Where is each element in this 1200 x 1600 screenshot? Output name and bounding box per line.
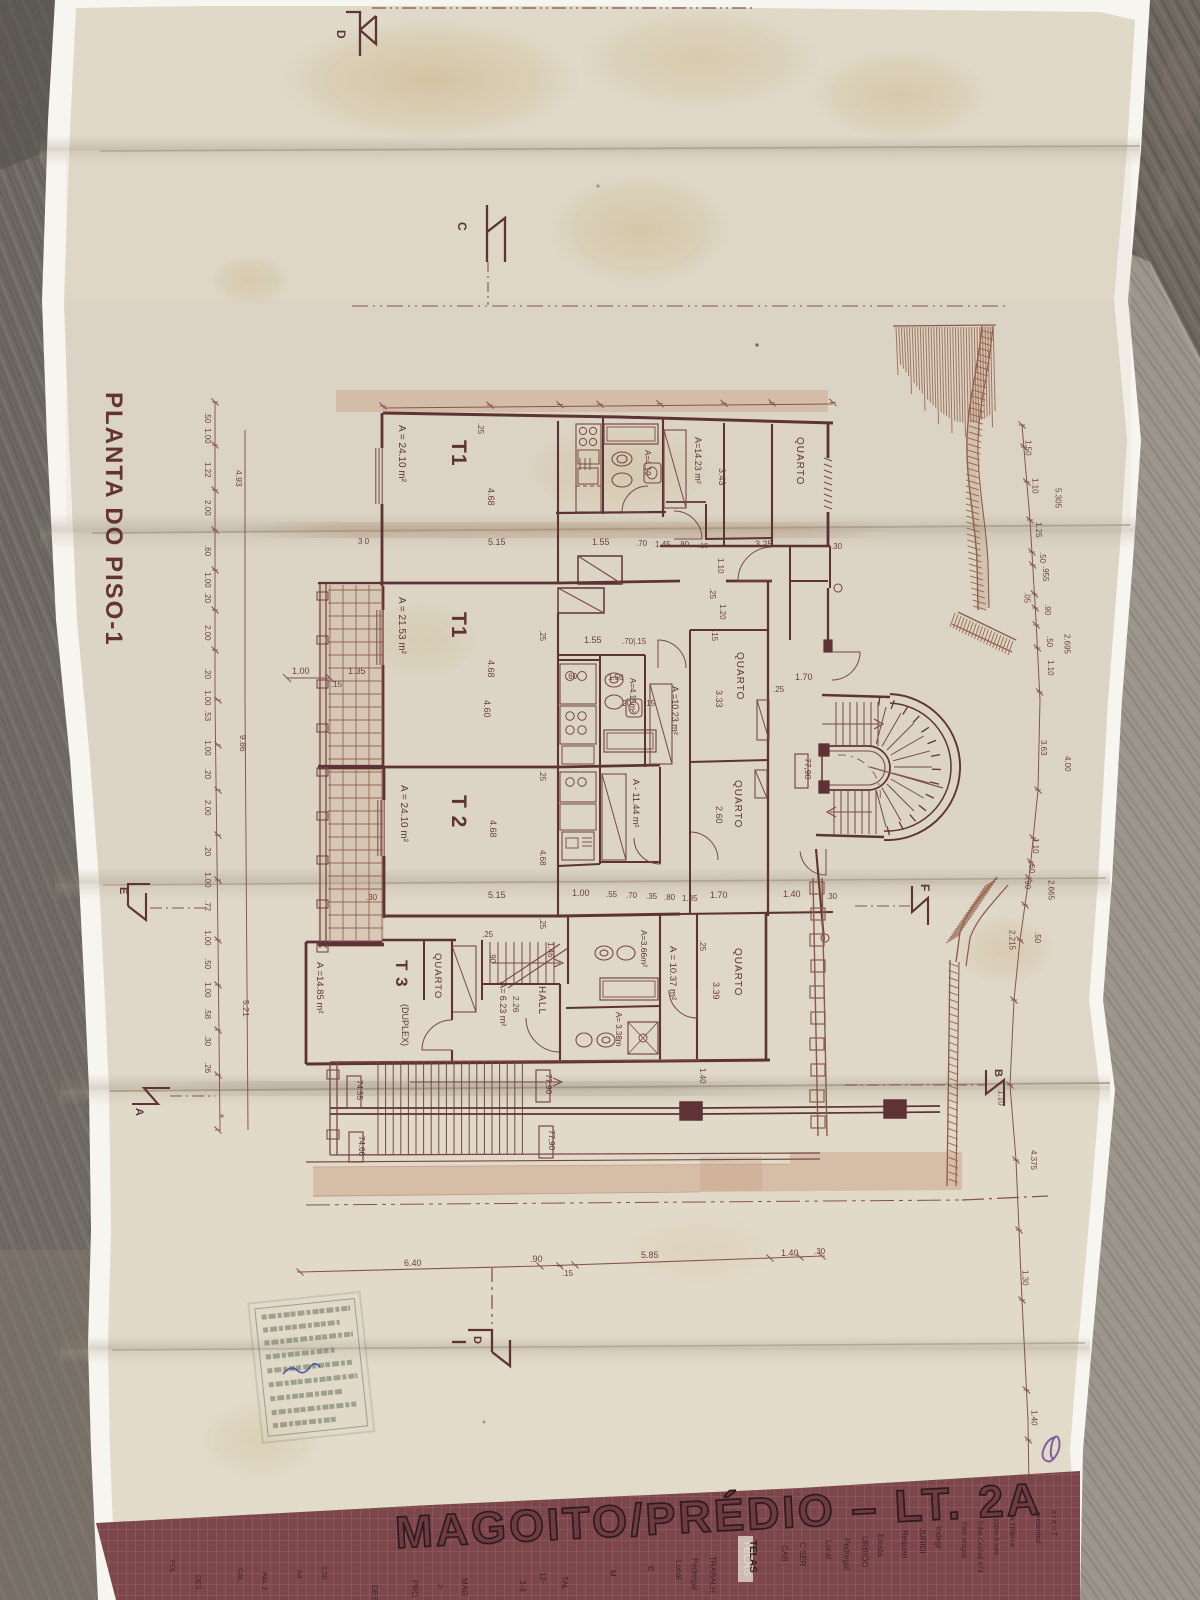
svg-text:.25: .25 bbox=[708, 588, 717, 600]
svg-text:(DUPLEX): (DUPLEX) bbox=[400, 1004, 410, 1046]
svg-text:URBIOO: URBIOO bbox=[860, 1536, 869, 1568]
svg-text:4.60: 4.60 bbox=[482, 700, 492, 718]
svg-text:.20: .20 bbox=[620, 699, 632, 708]
svg-text:1.00: 1.00 bbox=[292, 666, 310, 676]
svg-text:6.40: 6.40 bbox=[404, 1258, 422, 1268]
svg-text:3.33: 3.33 bbox=[714, 690, 724, 708]
svg-text:.50: .50 bbox=[203, 958, 212, 970]
svg-text:74.66: 74.66 bbox=[357, 1136, 366, 1157]
svg-text:.50: .50 bbox=[1033, 932, 1042, 944]
svg-text:1.40: 1.40 bbox=[783, 889, 801, 899]
svg-text:5.21: 5.21 bbox=[241, 1000, 251, 1017]
svg-text:5.15: 5.15 bbox=[488, 890, 506, 900]
svg-text:1.00: 1.00 bbox=[203, 740, 212, 756]
svg-text:1:50: 1:50 bbox=[320, 1566, 327, 1580]
svg-text:A: A bbox=[133, 1108, 145, 1116]
svg-text:.90: .90 bbox=[1043, 604, 1052, 616]
svg-text:77,90: 77,90 bbox=[803, 758, 813, 780]
svg-text:2.215: 2.215 bbox=[1007, 930, 1016, 951]
svg-text:77,90: 77,90 bbox=[544, 1074, 553, 1095]
svg-text:.20: .20 bbox=[203, 592, 212, 604]
svg-text:2.00: 2.00 bbox=[203, 625, 212, 641]
svg-text:1.00: 1.00 bbox=[203, 572, 212, 588]
svg-text:.15: .15 bbox=[710, 630, 719, 642]
svg-text:.30: .30 bbox=[814, 1247, 826, 1256]
svg-text:A=14.23 m²: A=14.23 m² bbox=[693, 437, 703, 484]
svg-text:Pedregal: Pedregal bbox=[842, 1538, 851, 1570]
svg-text:100m h mm: 100m h mm bbox=[992, 1518, 999, 1555]
svg-text:4.375: 4.375 bbox=[1029, 1150, 1038, 1171]
svg-text:.25: .25 bbox=[476, 423, 485, 435]
svg-text:Local: Local bbox=[674, 1560, 683, 1579]
svg-text:QUARTO: QUARTO bbox=[432, 953, 443, 999]
svg-text:1.25: 1.25 bbox=[1034, 522, 1043, 538]
svg-text:A =14.85 m²: A =14.85 m² bbox=[314, 962, 325, 1014]
svg-text:1.40: 1.40 bbox=[698, 1068, 707, 1084]
svg-text:3.43: 3.43 bbox=[717, 468, 727, 486]
svg-text:2.26: 2.26 bbox=[511, 996, 521, 1013]
svg-text:FOL: FOL bbox=[168, 1560, 175, 1574]
svg-text:QUARTO: QUARTO bbox=[732, 948, 743, 996]
svg-text:5.85: 5.85 bbox=[641, 1250, 659, 1260]
svg-text:A= 6.23 m²: A= 6.23 m² bbox=[498, 982, 508, 1026]
svg-text:3.25: 3.25 bbox=[755, 539, 773, 549]
svg-text:.20: .20 bbox=[203, 668, 212, 680]
svg-text:A=3.66m²: A=3.66m² bbox=[639, 930, 649, 967]
svg-text:3.39: 3.39 bbox=[711, 982, 721, 1000]
svg-text:3 0: 3 0 bbox=[358, 537, 370, 546]
svg-text:1.40: 1.40 bbox=[1030, 1410, 1039, 1426]
svg-text:A =10.23 m²: A =10.23 m² bbox=[670, 686, 680, 735]
svg-text:.80: .80 bbox=[664, 893, 676, 902]
svg-text:MAG: MAG bbox=[460, 1578, 469, 1596]
svg-text:1.50: 1.50 bbox=[1023, 440, 1032, 456]
svg-text:9.86: 9.86 bbox=[238, 735, 248, 752]
svg-text:JURIDI: JURIDI bbox=[918, 1528, 927, 1554]
svg-text:E: E bbox=[646, 1566, 655, 1571]
svg-text:CAL: CAL bbox=[236, 1568, 243, 1582]
svg-text:Local: Local bbox=[824, 1540, 833, 1559]
svg-text:.80: .80 bbox=[678, 540, 690, 549]
svg-text:2.00: 2.00 bbox=[203, 500, 212, 516]
svg-text:Tribe Cechal 974: Tribe Cechal 974 bbox=[976, 1520, 983, 1573]
svg-text:1.10: 1.10 bbox=[1046, 660, 1055, 676]
svg-text:A = 24.10 m²: A = 24.10 m² bbox=[398, 785, 409, 843]
svg-text:.35: .35 bbox=[646, 892, 658, 901]
svg-text:Requeri: Requeri bbox=[900, 1530, 909, 1558]
svg-text:E: E bbox=[117, 887, 129, 894]
svg-text:.60: .60 bbox=[203, 545, 212, 557]
svg-text:1.40: 1.40 bbox=[781, 1248, 799, 1258]
svg-text:.26: .26 bbox=[203, 1062, 212, 1074]
svg-text:Indegr: Indegr bbox=[934, 1526, 943, 1549]
svg-text:QUARTO: QUARTO bbox=[732, 780, 743, 828]
svg-text:F: F bbox=[918, 884, 932, 891]
svg-text:2.695: 2.695 bbox=[1063, 634, 1072, 655]
svg-text:4.68: 4.68 bbox=[486, 660, 496, 678]
svg-text:Emsta: Emsta bbox=[876, 1534, 885, 1557]
svg-text:1.10: 1.10 bbox=[716, 558, 725, 574]
svg-text:QUARTO: QUARTO bbox=[794, 437, 805, 485]
svg-text:1.46: 1.46 bbox=[546, 942, 555, 958]
svg-text:TELAS: TELAS bbox=[747, 1540, 758, 1573]
svg-text:2.665: 2.665 bbox=[1047, 880, 1056, 901]
svg-text:1.45: 1.45 bbox=[655, 540, 671, 549]
svg-text:.50: .50 bbox=[203, 412, 212, 424]
svg-text:1.50: 1.50 bbox=[608, 673, 624, 682]
svg-text:Pedregal: Pedregal bbox=[690, 1558, 699, 1590]
svg-text:DES: DES bbox=[194, 1575, 201, 1590]
svg-text:5.305: 5.305 bbox=[1053, 488, 1062, 509]
svg-text:T 3: T 3 bbox=[392, 960, 411, 988]
svg-text:PRO: PRO bbox=[410, 1580, 419, 1597]
svg-text:.25: .25 bbox=[482, 930, 494, 939]
svg-text:T1: T1 bbox=[447, 440, 470, 467]
svg-text:Fale resgist: Fale resgist bbox=[960, 1522, 967, 1558]
svg-text:.72: .72 bbox=[203, 900, 212, 912]
svg-text:.90: .90 bbox=[530, 1254, 543, 1264]
svg-text:1.00: 1.00 bbox=[203, 872, 212, 888]
svg-text:4.00: 4.00 bbox=[1063, 756, 1072, 772]
svg-text:.05: .05 bbox=[1022, 592, 1031, 604]
svg-text:3.63: 3.63 bbox=[1039, 740, 1048, 756]
svg-text:A TRBH e: A TRBH e bbox=[1008, 1516, 1015, 1547]
svg-text:3-4: 3-4 bbox=[518, 1580, 527, 1592]
svg-text:C SER: C SER bbox=[798, 1542, 807, 1567]
svg-text:1.35: 1.35 bbox=[682, 894, 698, 903]
svg-text:1.10: 1.10 bbox=[1031, 478, 1040, 494]
svg-text:PAL 2: PAL 2 bbox=[260, 1572, 267, 1590]
svg-text:1.55: 1.55 bbox=[584, 635, 602, 645]
svg-text:2.60: 2.60 bbox=[714, 806, 724, 824]
svg-text:T 2: T 2 bbox=[447, 795, 470, 828]
svg-text:2-: 2- bbox=[436, 1584, 443, 1591]
svg-text:12-: 12- bbox=[538, 1572, 547, 1584]
svg-text:1.00: 1.00 bbox=[203, 428, 212, 444]
svg-text:.30: .30 bbox=[831, 542, 843, 551]
svg-text:TRABALH: TRABALH bbox=[708, 1556, 717, 1593]
svg-text:QUARTO: QUARTO bbox=[734, 652, 745, 700]
svg-text:1.00: 1.00 bbox=[203, 930, 212, 946]
svg-text:1.22: 1.22 bbox=[203, 462, 212, 478]
svg-text:.25: .25 bbox=[538, 918, 547, 930]
svg-text:.55: .55 bbox=[606, 890, 618, 899]
svg-text:B: B bbox=[992, 1069, 1004, 1077]
svg-text:C: C bbox=[455, 222, 469, 231]
svg-text:1.00: 1.00 bbox=[572, 888, 590, 898]
svg-text:1.55: 1.55 bbox=[592, 537, 610, 547]
svg-text:.50: .50 bbox=[1038, 552, 1047, 564]
svg-text:.15: .15 bbox=[562, 1269, 574, 1278]
svg-text:CAB: CAB bbox=[780, 1545, 789, 1561]
svg-text:.25: .25 bbox=[538, 770, 547, 782]
svg-text:HALL: HALL bbox=[536, 986, 547, 1015]
svg-text:.30: .30 bbox=[203, 1035, 212, 1047]
svg-text:74.55: 74.55 bbox=[355, 1080, 364, 1101]
svg-text:.70: .70 bbox=[626, 891, 638, 900]
svg-text:D: D bbox=[334, 30, 348, 39]
svg-text:A = 21.53 m²: A = 21.53 m² bbox=[396, 597, 407, 655]
svg-text:.60: .60 bbox=[1027, 862, 1036, 874]
svg-text:A4: A4 bbox=[295, 1570, 302, 1579]
svg-text:.70: .70 bbox=[636, 539, 648, 548]
svg-text:D: D bbox=[471, 1336, 483, 1344]
svg-text:1.10: 1.10 bbox=[996, 1090, 1005, 1106]
svg-text:4.68: 4.68 bbox=[486, 488, 496, 506]
svg-text:a r e u T: a r e u T bbox=[1050, 1510, 1057, 1537]
svg-text:.15: .15 bbox=[644, 699, 656, 708]
svg-text:A = 24.10 m²: A = 24.10 m² bbox=[396, 425, 407, 483]
svg-text:77,90: 77,90 bbox=[547, 1130, 556, 1151]
svg-text:.90: .90 bbox=[488, 952, 497, 964]
svg-text:.30: .30 bbox=[826, 892, 838, 901]
svg-text:.25: .25 bbox=[773, 685, 785, 694]
svg-text:.90: .90 bbox=[1023, 878, 1032, 890]
svg-text:.20: .20 bbox=[203, 768, 212, 780]
svg-text:.60: .60 bbox=[566, 672, 578, 681]
svg-text:.50: .50 bbox=[1045, 636, 1054, 648]
svg-text:1.10: 1.10 bbox=[1031, 838, 1040, 854]
svg-text:.70|.15: .70|.15 bbox=[622, 637, 647, 646]
svg-text:A= 3.38m: A= 3.38m bbox=[614, 1012, 623, 1047]
svg-text:1.70: 1.70 bbox=[795, 672, 813, 682]
svg-text:.30: .30 bbox=[366, 893, 378, 902]
svg-text:.15: .15 bbox=[698, 541, 708, 550]
svg-text:1.30: 1.30 bbox=[1021, 1270, 1030, 1286]
svg-text:A - 11.44 m²: A - 11.44 m² bbox=[631, 779, 641, 827]
svg-text:PLANTA DO PISO-1: PLANTA DO PISO-1 bbox=[100, 392, 127, 647]
svg-text:1.00: 1.00 bbox=[203, 690, 212, 706]
svg-text:5.15: 5.15 bbox=[488, 537, 506, 547]
svg-text:.955: .955 bbox=[1041, 566, 1050, 582]
svg-text:presented: presented bbox=[1034, 1512, 1041, 1543]
svg-text:2.00: 2.00 bbox=[203, 800, 212, 816]
svg-text:4.93: 4.93 bbox=[234, 470, 244, 487]
svg-text:TAL: TAL bbox=[560, 1576, 569, 1591]
svg-text:.20: .20 bbox=[203, 845, 212, 857]
svg-text:4.68: 4.68 bbox=[488, 820, 498, 838]
svg-text:.58: .58 bbox=[203, 1008, 212, 1020]
svg-text:1.00: 1.00 bbox=[203, 982, 212, 998]
svg-text:.25: .25 bbox=[698, 940, 707, 952]
svg-text:M: M bbox=[608, 1570, 617, 1577]
svg-text:1.20: 1.20 bbox=[718, 604, 727, 620]
svg-text:T1: T1 bbox=[447, 612, 470, 639]
svg-text:1.70: 1.70 bbox=[710, 890, 728, 900]
svg-text:.25: .25 bbox=[538, 630, 547, 642]
svg-text:4.68: 4.68 bbox=[538, 850, 547, 866]
svg-text:.53: .53 bbox=[203, 710, 212, 722]
svg-text:DES: DES bbox=[370, 1585, 379, 1600]
svg-text:1.35: 1.35 bbox=[348, 666, 366, 676]
